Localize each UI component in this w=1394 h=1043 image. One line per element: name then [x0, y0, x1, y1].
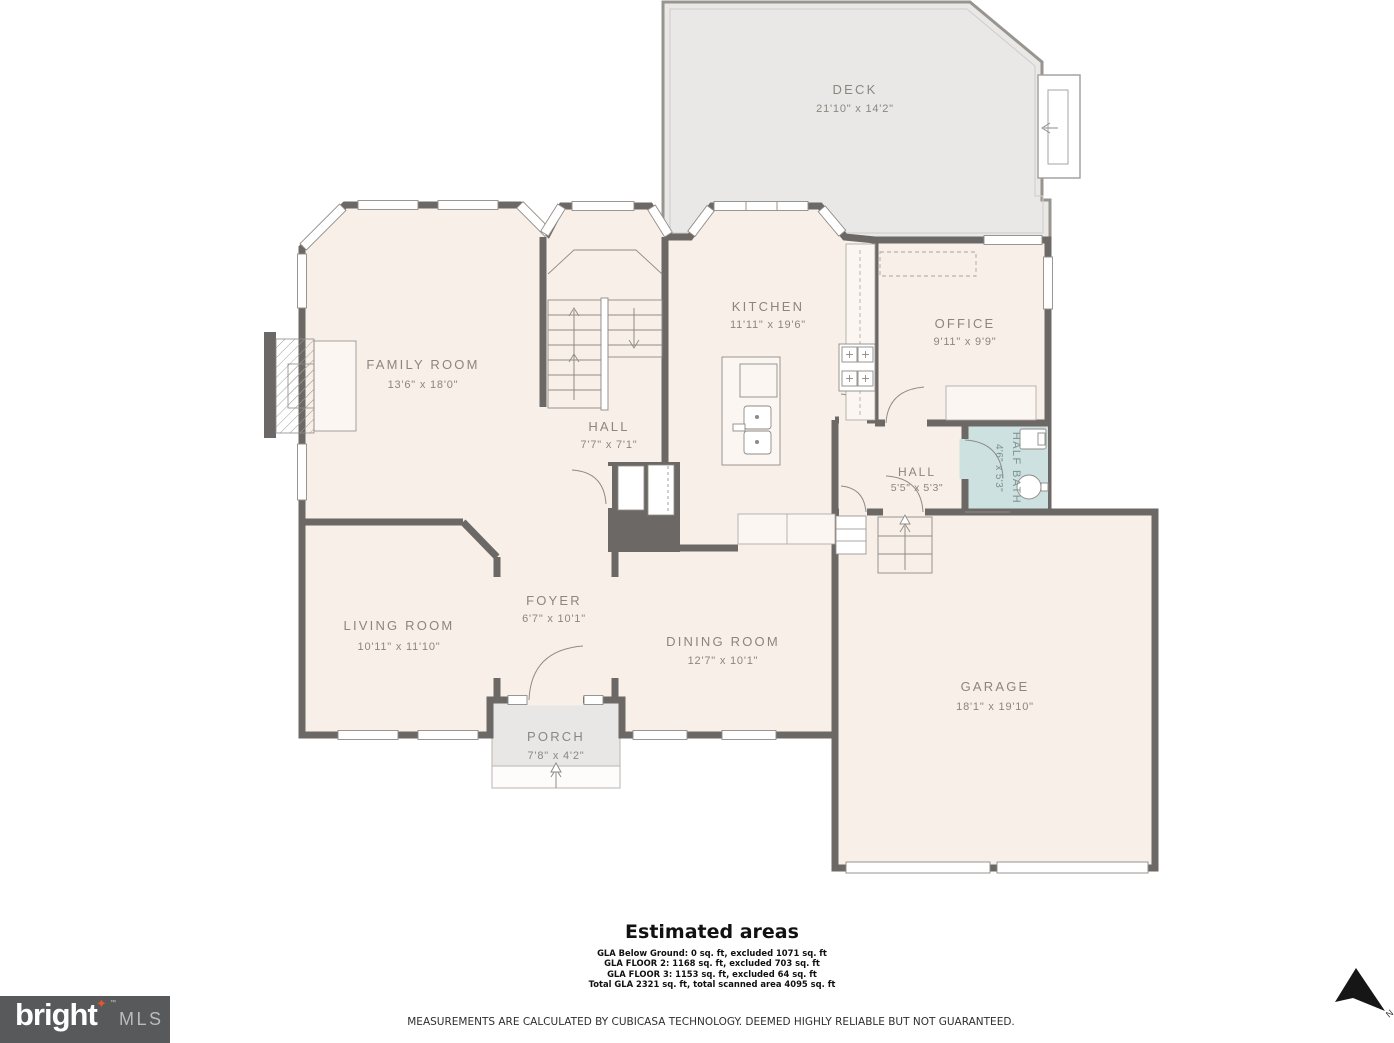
room-label-half-bath: HALF BATH [1010, 432, 1022, 504]
room-dims-living-room: 10'11" x 11'10" [358, 641, 441, 653]
fireplace [276, 339, 356, 433]
room-label-kitchen: KITCHEN [732, 299, 804, 314]
counter [846, 244, 875, 420]
gla-line: GLA Below Ground: 0 sq. ft, excluded 107… [30, 948, 1394, 958]
room-dims-family-room: 13'6" x 18'0" [388, 379, 459, 391]
garage-doors [846, 862, 1148, 873]
room-dims-dining-room: 12'7" x 10'1" [688, 655, 759, 667]
fireplace-back [264, 332, 276, 438]
disclaimer-text: MEASUREMENTS ARE CALCULATED BY CUBICASA … [28, 1016, 1394, 1028]
room-label-foyer: FOYER [526, 593, 582, 608]
logo-suffix-text: MLS [119, 1009, 164, 1030]
room-label-deck: DECK [833, 82, 878, 97]
room-label-hall-upper: HALL [588, 419, 629, 434]
logo-trademark: ™ [110, 1000, 116, 1006]
stove-icon [839, 344, 875, 391]
peninsula-counter [738, 514, 835, 544]
room-dims-garage: 18'1" x 19'10" [956, 701, 1034, 713]
room-label-porch: PORCH [527, 729, 585, 744]
brightmls-logo: bright ✦ ™ MLS [0, 996, 170, 1043]
toilet-icon [1020, 429, 1046, 449]
room-label-dining-room: DINING ROOM [666, 634, 780, 649]
room-dims-hall-upper: 7'7" x 7'1" [581, 439, 638, 451]
house-outline [302, 205, 1155, 868]
estimated-areas: Estimated areas GLA Below Ground: 0 sq. … [30, 921, 1394, 989]
room-label-family-room: FAMILY ROOM [366, 357, 479, 372]
room-label-hall-lower: HALL [898, 465, 936, 479]
deck-stairs [1038, 75, 1080, 178]
gla-line: GLA FLOOR 2: 1168 sq. ft, excluded 703 s… [30, 958, 1394, 968]
room-dims-office: 9'11" x 9'9" [934, 336, 997, 348]
room-dims-foyer: 6'7" x 10'1" [522, 613, 586, 625]
logo-brand-text: bright [15, 997, 97, 1033]
gla-line: Total GLA 2321 sq. ft, total scanned are… [30, 979, 1394, 989]
room-dims-kitchen: 11'11" x 19'6" [730, 319, 806, 331]
room-label-office: OFFICE [935, 316, 996, 331]
room-dims-porch: 7'8" x 4'2" [528, 750, 585, 762]
floor-plan: DECK 21'10" x 14'2" KITCHEN 11'11" x 19'… [0, 0, 1394, 1043]
star-icon: ✦ [96, 996, 107, 1012]
room-dims-deck: 21'10" x 14'2" [816, 103, 894, 115]
porch [492, 702, 620, 788]
room-dims-hall-lower: 5'5" x 5'3" [891, 482, 944, 494]
room-label-living-room: LIVING ROOM [344, 618, 455, 633]
room-label-garage: GARAGE [961, 679, 1030, 694]
gla-line: GLA FLOOR 3: 1153 sq. ft, excluded 64 sq… [30, 969, 1394, 979]
estimated-areas-title: Estimated areas [30, 921, 1394, 943]
room-dims-half-bath: 4'6" x 5'3" [993, 444, 1004, 492]
kitchen-island [722, 357, 780, 465]
floor-plan-page: DECK 21'10" x 14'2" KITCHEN 11'11" x 19'… [0, 0, 1394, 1043]
